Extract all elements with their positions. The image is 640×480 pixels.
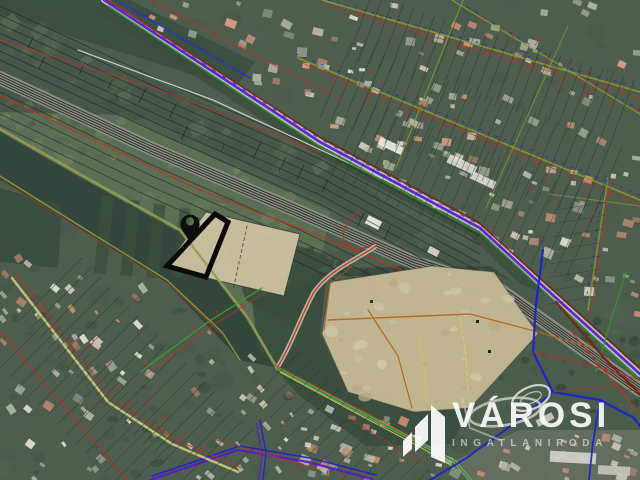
map-image: VÁROSI INGATLANIRODA [0,0,640,480]
map-layers [0,0,640,480]
map-canvas[interactable] [0,0,640,480]
